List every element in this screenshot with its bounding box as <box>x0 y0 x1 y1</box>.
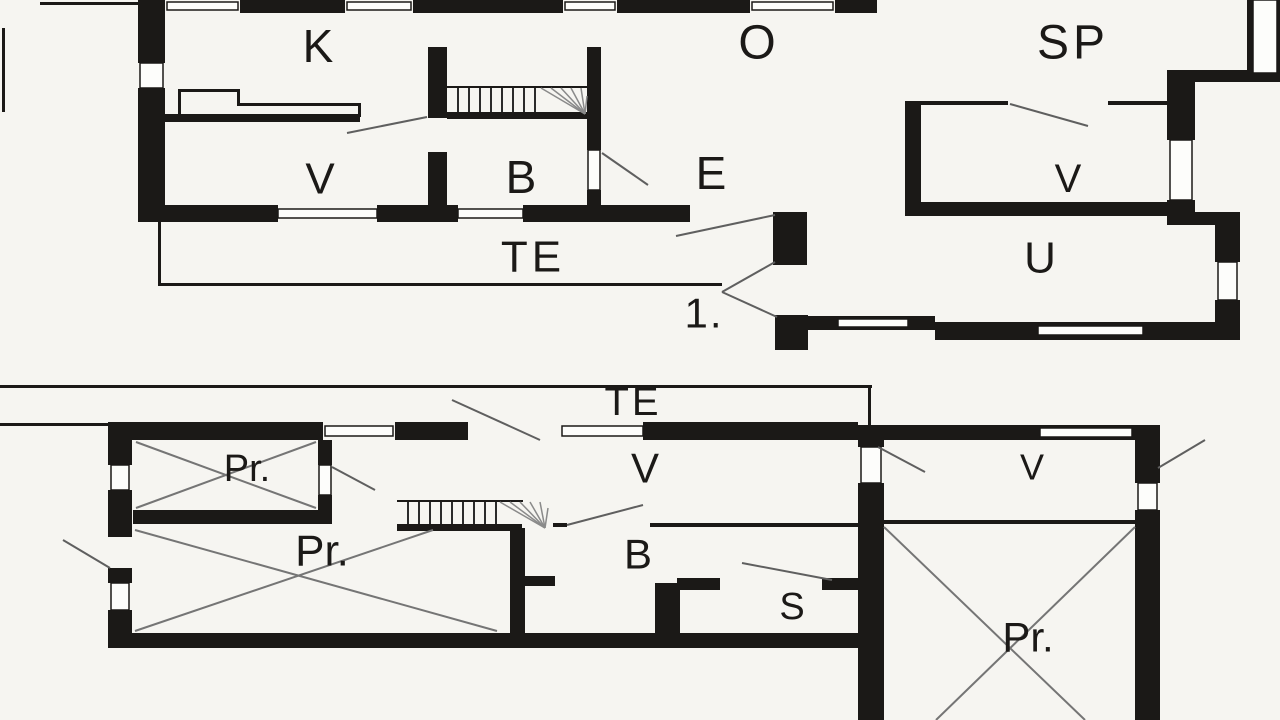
thin-wall-line <box>868 385 871 425</box>
wall-segment <box>138 0 165 63</box>
window <box>278 209 377 218</box>
room-label-V-first: V <box>305 155 335 204</box>
wall-segment <box>905 202 1175 216</box>
room-label-B-ground: B <box>624 531 652 578</box>
thin-wall-line <box>650 523 858 527</box>
thin-wall-line <box>178 89 181 117</box>
door-swing-line <box>722 262 775 292</box>
wall-segment <box>643 422 858 440</box>
thin-wall-line <box>905 101 1008 105</box>
door-swing-line <box>676 215 775 236</box>
wall-segment <box>240 0 345 13</box>
window <box>1038 326 1143 335</box>
room-label-TE-ground: TE <box>604 380 661 424</box>
wall-segment <box>164 114 360 122</box>
wall-segment <box>138 88 165 220</box>
room-label-1-first: 1. <box>684 290 723 337</box>
window <box>1040 428 1132 437</box>
door-swing-line <box>742 563 832 580</box>
window <box>562 426 643 436</box>
upper-stair-fan-line <box>585 96 587 114</box>
wall-segment <box>1167 82 1195 140</box>
thin-wall-line <box>178 89 240 92</box>
void-cross-line <box>135 530 433 631</box>
window <box>325 426 393 436</box>
floor-plan-canvas: KOSPVBEVTEU1.TEPr.VVPr.BSPr. <box>0 0 1280 720</box>
window <box>861 447 881 483</box>
void-cross-line <box>884 527 1085 720</box>
door-swing-line <box>567 505 643 525</box>
window <box>319 465 331 495</box>
wall-segment <box>655 583 680 640</box>
wall-segment <box>1215 225 1240 262</box>
window <box>1138 483 1157 510</box>
window <box>1170 140 1192 200</box>
wall-segment <box>377 205 458 222</box>
window <box>458 209 523 218</box>
wall-segment <box>523 205 690 222</box>
wall-segment <box>108 422 132 465</box>
thin-wall-line <box>1108 101 1175 105</box>
room-label-SP-first: SP <box>1037 17 1109 70</box>
wall-segment <box>1135 425 1160 483</box>
wall-segment <box>108 490 132 537</box>
room-label-S-ground: S <box>779 586 804 628</box>
room-label-TE-first: TE <box>501 233 565 282</box>
window <box>111 583 129 610</box>
door-swing-line <box>332 467 375 490</box>
door-swing-line <box>722 292 777 317</box>
wall-segment <box>905 103 921 216</box>
wall-segment <box>858 425 884 447</box>
room-label-Pr-ground: Pr. <box>224 448 270 490</box>
window <box>565 2 615 10</box>
room-label-V-ground: V <box>631 445 659 492</box>
room-label-B-first: B <box>506 151 537 203</box>
upper-stair-fan-line <box>551 88 585 114</box>
thin-wall-line <box>158 222 161 286</box>
wall-segment <box>108 568 132 583</box>
window <box>1253 0 1277 73</box>
room-label-O-first: O <box>738 17 775 70</box>
room-label-Pr-ground: Pr. <box>295 527 349 576</box>
thin-wall-line <box>553 523 567 527</box>
door-swing-line <box>602 153 648 185</box>
room-label-E-first: E <box>696 147 727 199</box>
thin-wall-line <box>40 2 138 5</box>
lower-stair-fan-line <box>545 508 548 528</box>
window <box>347 2 411 10</box>
floor-plan-svg: KOSPVBEVTEU1.TEPr.VVPr.BSPr. <box>0 0 1280 720</box>
thin-wall-line <box>237 103 361 106</box>
window <box>140 63 163 88</box>
thin-wall-line <box>397 500 523 502</box>
wall-segment <box>835 0 877 13</box>
wall-segment <box>428 47 447 118</box>
window <box>588 150 600 190</box>
door-swing-line <box>878 447 925 472</box>
wall-segment <box>108 422 323 440</box>
wall-segment <box>397 524 522 531</box>
room-label-K-first: K <box>303 20 334 72</box>
wall-segment <box>510 528 525 648</box>
wall-segment <box>413 0 563 13</box>
wall-segment <box>1195 212 1240 225</box>
room-label-Pr-ground: Pr. <box>1002 614 1053 661</box>
thin-wall-line <box>358 103 361 117</box>
window <box>167 2 238 10</box>
thin-wall-line <box>447 86 590 88</box>
wall-segment <box>395 422 468 440</box>
wall-segment <box>858 483 884 720</box>
door-swing-line <box>1010 104 1088 126</box>
room-label-U-first: U <box>1024 234 1056 283</box>
wall-segment <box>133 510 332 524</box>
thin-wall-line <box>158 283 722 286</box>
wall-segment <box>617 0 750 13</box>
wall-segment <box>138 205 278 222</box>
wall-segment <box>525 576 555 586</box>
wall-segment <box>447 112 590 119</box>
room-label-V-ground: V <box>1020 447 1044 488</box>
window <box>1218 262 1237 300</box>
wall-segment <box>1167 200 1195 225</box>
wall-segment <box>677 578 720 590</box>
wall-segment <box>1247 0 1253 73</box>
door-swing-line <box>63 540 110 568</box>
wall-segment <box>318 440 332 465</box>
wall-segment <box>1135 510 1160 720</box>
wall-segment <box>108 633 863 648</box>
window <box>838 319 908 327</box>
thin-wall-line <box>0 423 110 426</box>
room-label-V-first: V <box>1055 157 1082 201</box>
wall-segment <box>773 212 807 265</box>
window <box>752 2 833 10</box>
thin-wall-line <box>884 520 1135 524</box>
thin-wall-line <box>2 28 5 112</box>
wall-segment <box>587 47 601 150</box>
window <box>111 465 129 490</box>
door-swing-line <box>1158 440 1205 468</box>
thin-wall-line <box>0 385 872 388</box>
